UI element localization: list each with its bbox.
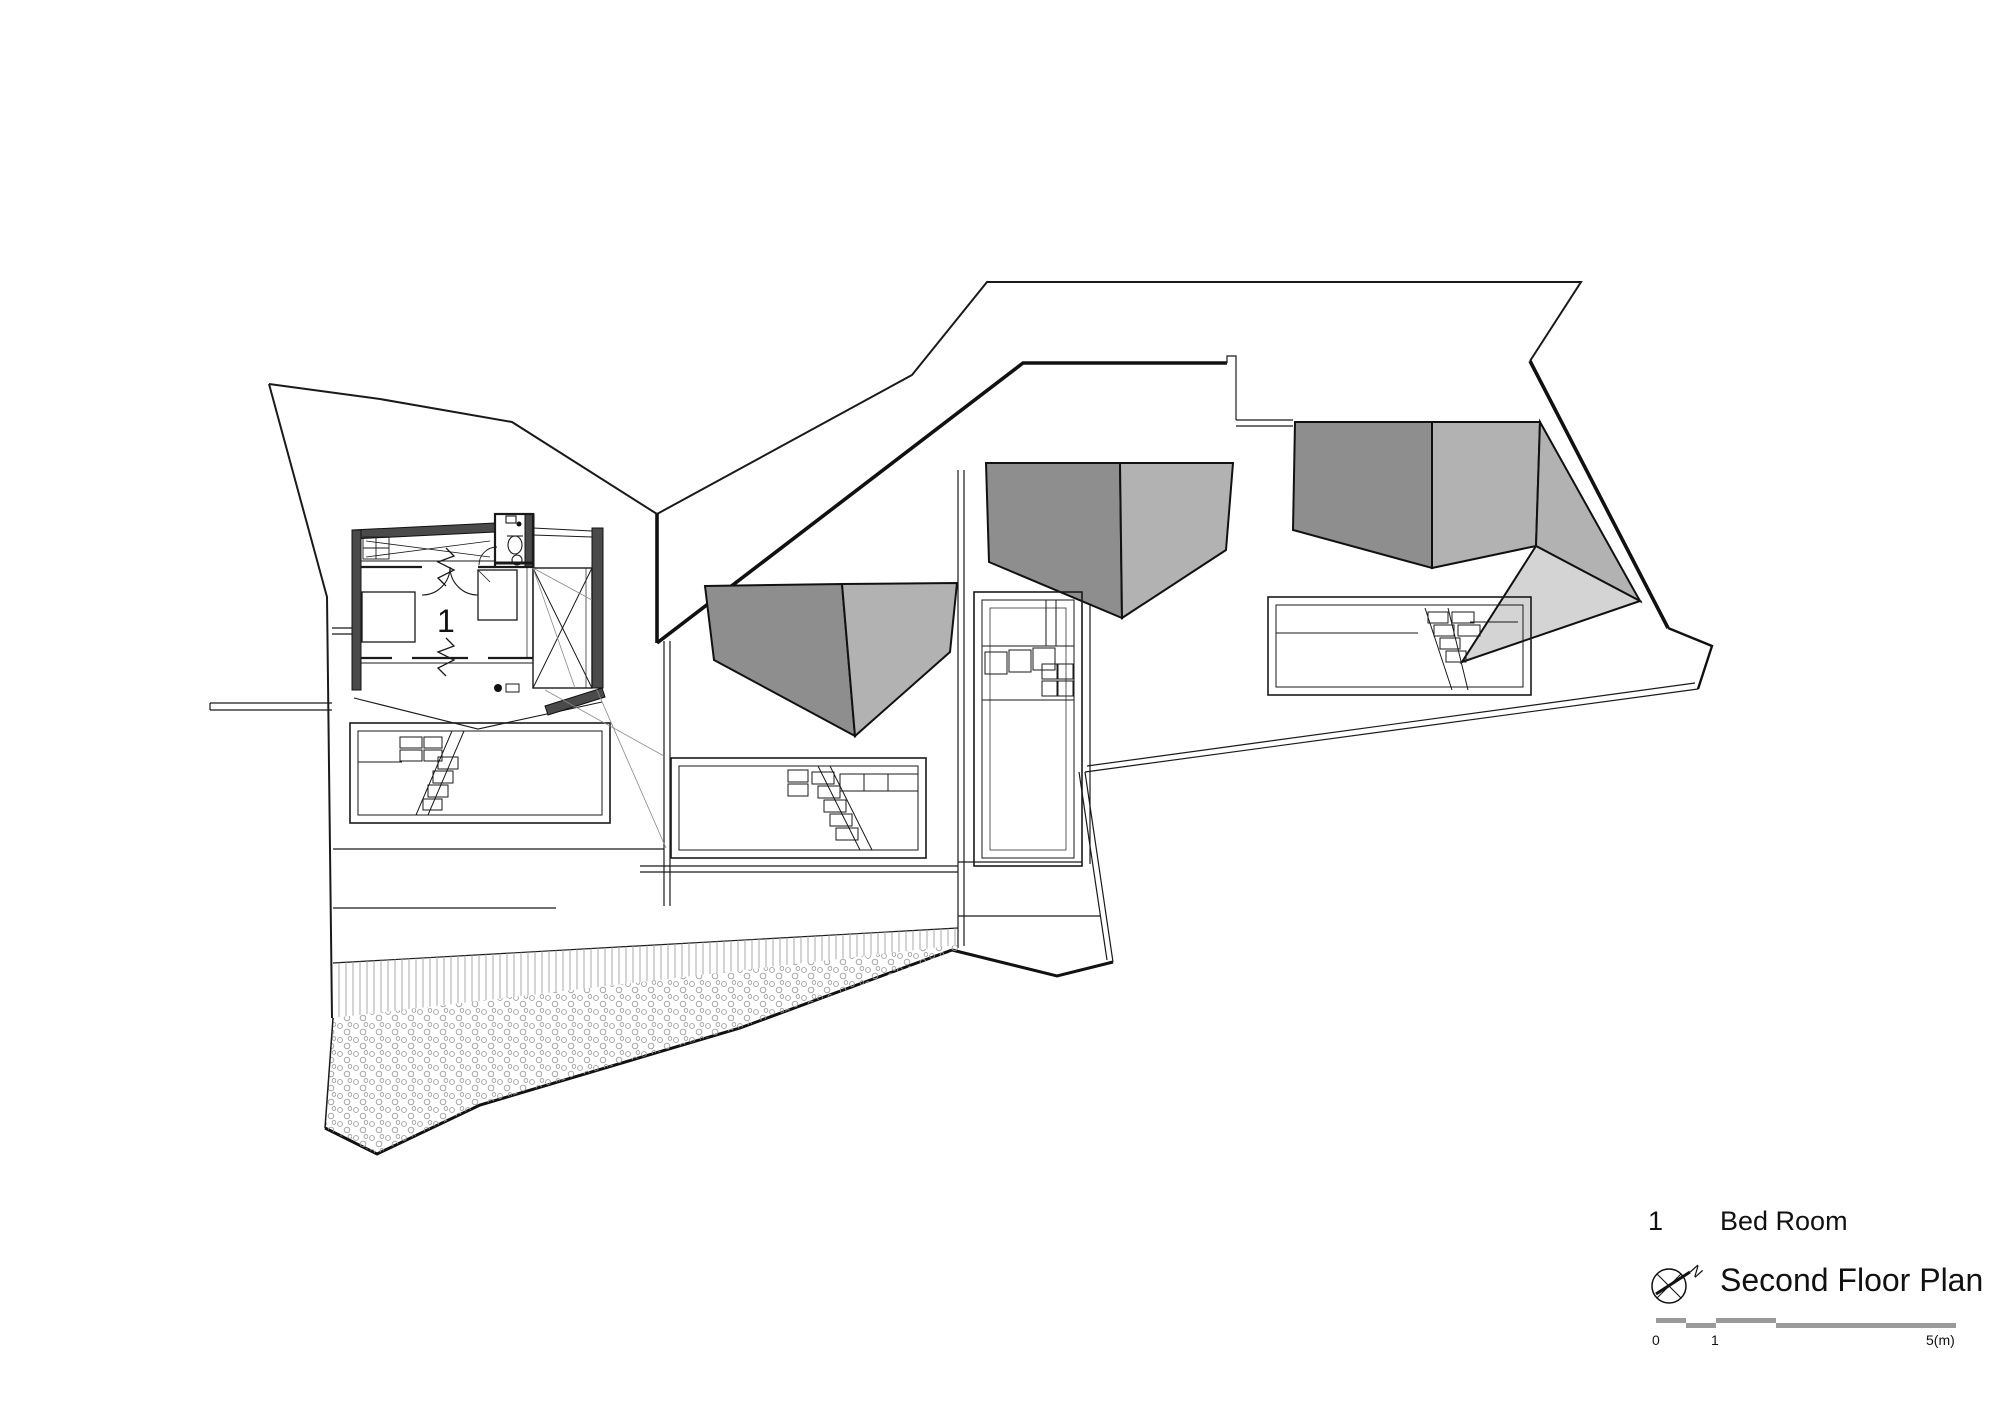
legend-item-number: 1 (1648, 1206, 1663, 1237)
skylight-stair-vertical (974, 592, 1082, 866)
bed (478, 570, 517, 620)
legend-item-label: Bed Room (1720, 1206, 1848, 1237)
scale-bar-segment (1656, 1318, 1686, 1323)
floor-plan-drawing: 1 (0, 0, 2000, 1414)
north-arrow-icon: N (1643, 1250, 1709, 1316)
roof-monitor-right (1293, 422, 1640, 662)
room-number-label: 1 (437, 603, 455, 639)
skylight-stair-left (350, 723, 610, 823)
scale-tick-1: 1 (1711, 1332, 1719, 1348)
scale-bar-segment (1686, 1323, 1716, 1328)
floor-plan-sheet: 1 1 Bed Room N Second Floor Plan 0 (0, 0, 2000, 1414)
scale-bar-segment (1716, 1318, 1776, 1323)
roof-monitor-left (705, 583, 957, 736)
north-label: N (1686, 1262, 1706, 1281)
bed (362, 592, 415, 642)
wardrobe (361, 537, 495, 561)
scale-bar: 0 1 5(m) (1652, 1318, 1960, 1352)
floor-drain (494, 684, 502, 692)
ground-textures (325, 928, 958, 1154)
plan-title: Second Floor Plan (1720, 1262, 1983, 1299)
scale-tick-0: 0 (1652, 1332, 1660, 1348)
scale-bar-segment (1776, 1323, 1956, 1328)
skylight-stair-mid (671, 758, 926, 858)
door-swings (422, 567, 478, 595)
bedroom: 1 (352, 514, 605, 715)
scale-tick-5m: 5(m) (1926, 1332, 1955, 1348)
roof-monitor-center (986, 463, 1233, 618)
roof-monitors (705, 422, 1640, 736)
